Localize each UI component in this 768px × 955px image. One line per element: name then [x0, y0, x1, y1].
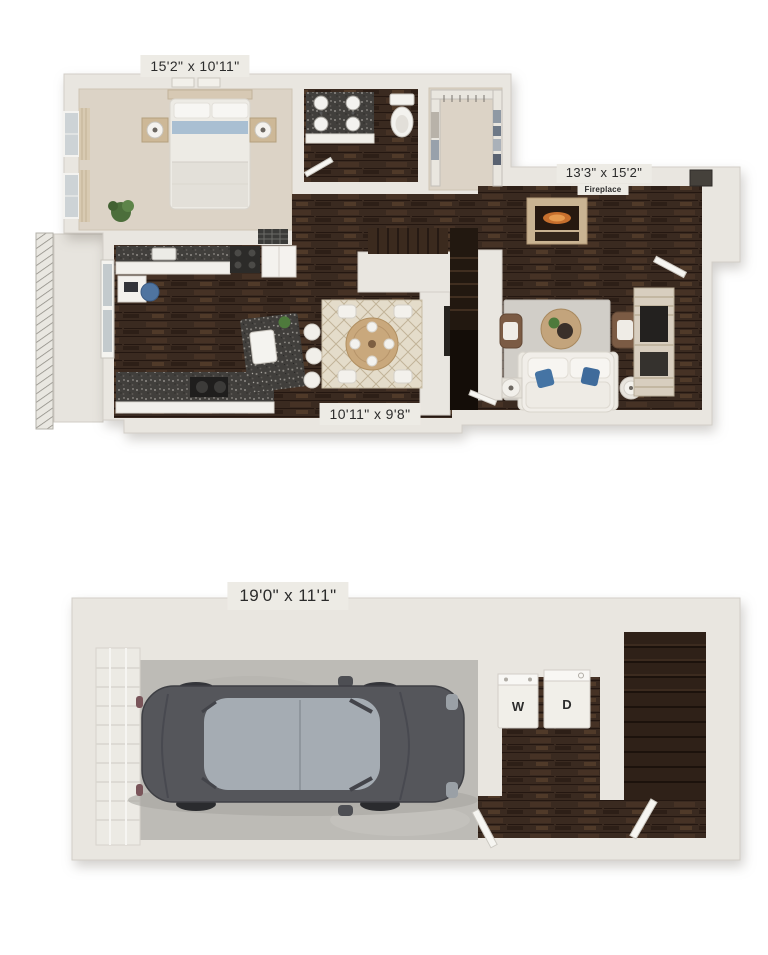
upper-floor-plan	[36, 74, 740, 433]
coffee-table	[541, 309, 581, 349]
balcony	[36, 233, 103, 429]
dining-table	[346, 318, 398, 370]
dining-area	[322, 300, 422, 388]
garage-dimensions-label: 19'0" x 11'1"	[227, 582, 348, 610]
floor-plan-graphic: W D	[0, 0, 768, 955]
chimney-chase	[690, 170, 712, 186]
table-lamp-right-icon	[255, 122, 271, 138]
taillight	[136, 784, 143, 796]
bar-stools	[304, 324, 322, 388]
headlight	[446, 782, 458, 798]
vent-grille-icon	[258, 229, 288, 244]
sofa	[518, 352, 618, 412]
kitchen-sink	[152, 248, 176, 260]
cooktop	[190, 377, 228, 397]
throw-pillow-right	[580, 367, 600, 387]
balcony-railing	[36, 233, 53, 429]
car-glass-roof	[204, 698, 380, 790]
office-chair	[141, 283, 159, 301]
lower-floor-plan: W D	[72, 598, 740, 860]
washer: W	[498, 674, 538, 728]
range	[230, 246, 260, 273]
tv-screen	[640, 306, 668, 342]
stairs-lower	[624, 632, 706, 800]
wall-stair-north	[358, 252, 452, 292]
accent-chair-left	[500, 314, 522, 348]
bedroom-dimensions-label: 15'2" x 10'11"	[140, 55, 249, 77]
kitchen-island	[240, 313, 307, 394]
wall-stairwell-east	[478, 250, 502, 400]
wall-mounted-tv	[444, 306, 450, 356]
side-mirror	[338, 805, 353, 816]
media-console	[634, 288, 674, 396]
headlight	[446, 694, 458, 710]
dryer: D	[544, 670, 590, 728]
table-lamp-left-icon	[147, 122, 163, 138]
dining-dimensions-label: 10'11" x 9'8"	[320, 403, 421, 425]
garage	[96, 648, 478, 845]
taillight	[136, 696, 143, 708]
garage-door	[96, 648, 140, 845]
toilet	[390, 94, 414, 137]
bed	[168, 90, 252, 209]
fireplace	[527, 198, 587, 244]
dryer-label: D	[562, 697, 571, 712]
living-room-dimensions-label: 13'3" x 15'2"	[557, 164, 652, 183]
fireplace-label: Fireplace	[578, 184, 629, 195]
washer-label: W	[512, 699, 525, 714]
wall-art-right	[198, 78, 220, 87]
sliding-glass-door	[101, 260, 114, 358]
kitchen-cabinets	[116, 262, 230, 274]
car	[128, 676, 478, 816]
floor-lamp-left-icon	[502, 378, 522, 398]
floor-plan-page: W D	[0, 0, 768, 955]
laptop-icon	[124, 282, 138, 292]
wall-art-left	[172, 78, 194, 87]
balcony-deck	[54, 234, 103, 422]
island-sink	[249, 330, 277, 365]
